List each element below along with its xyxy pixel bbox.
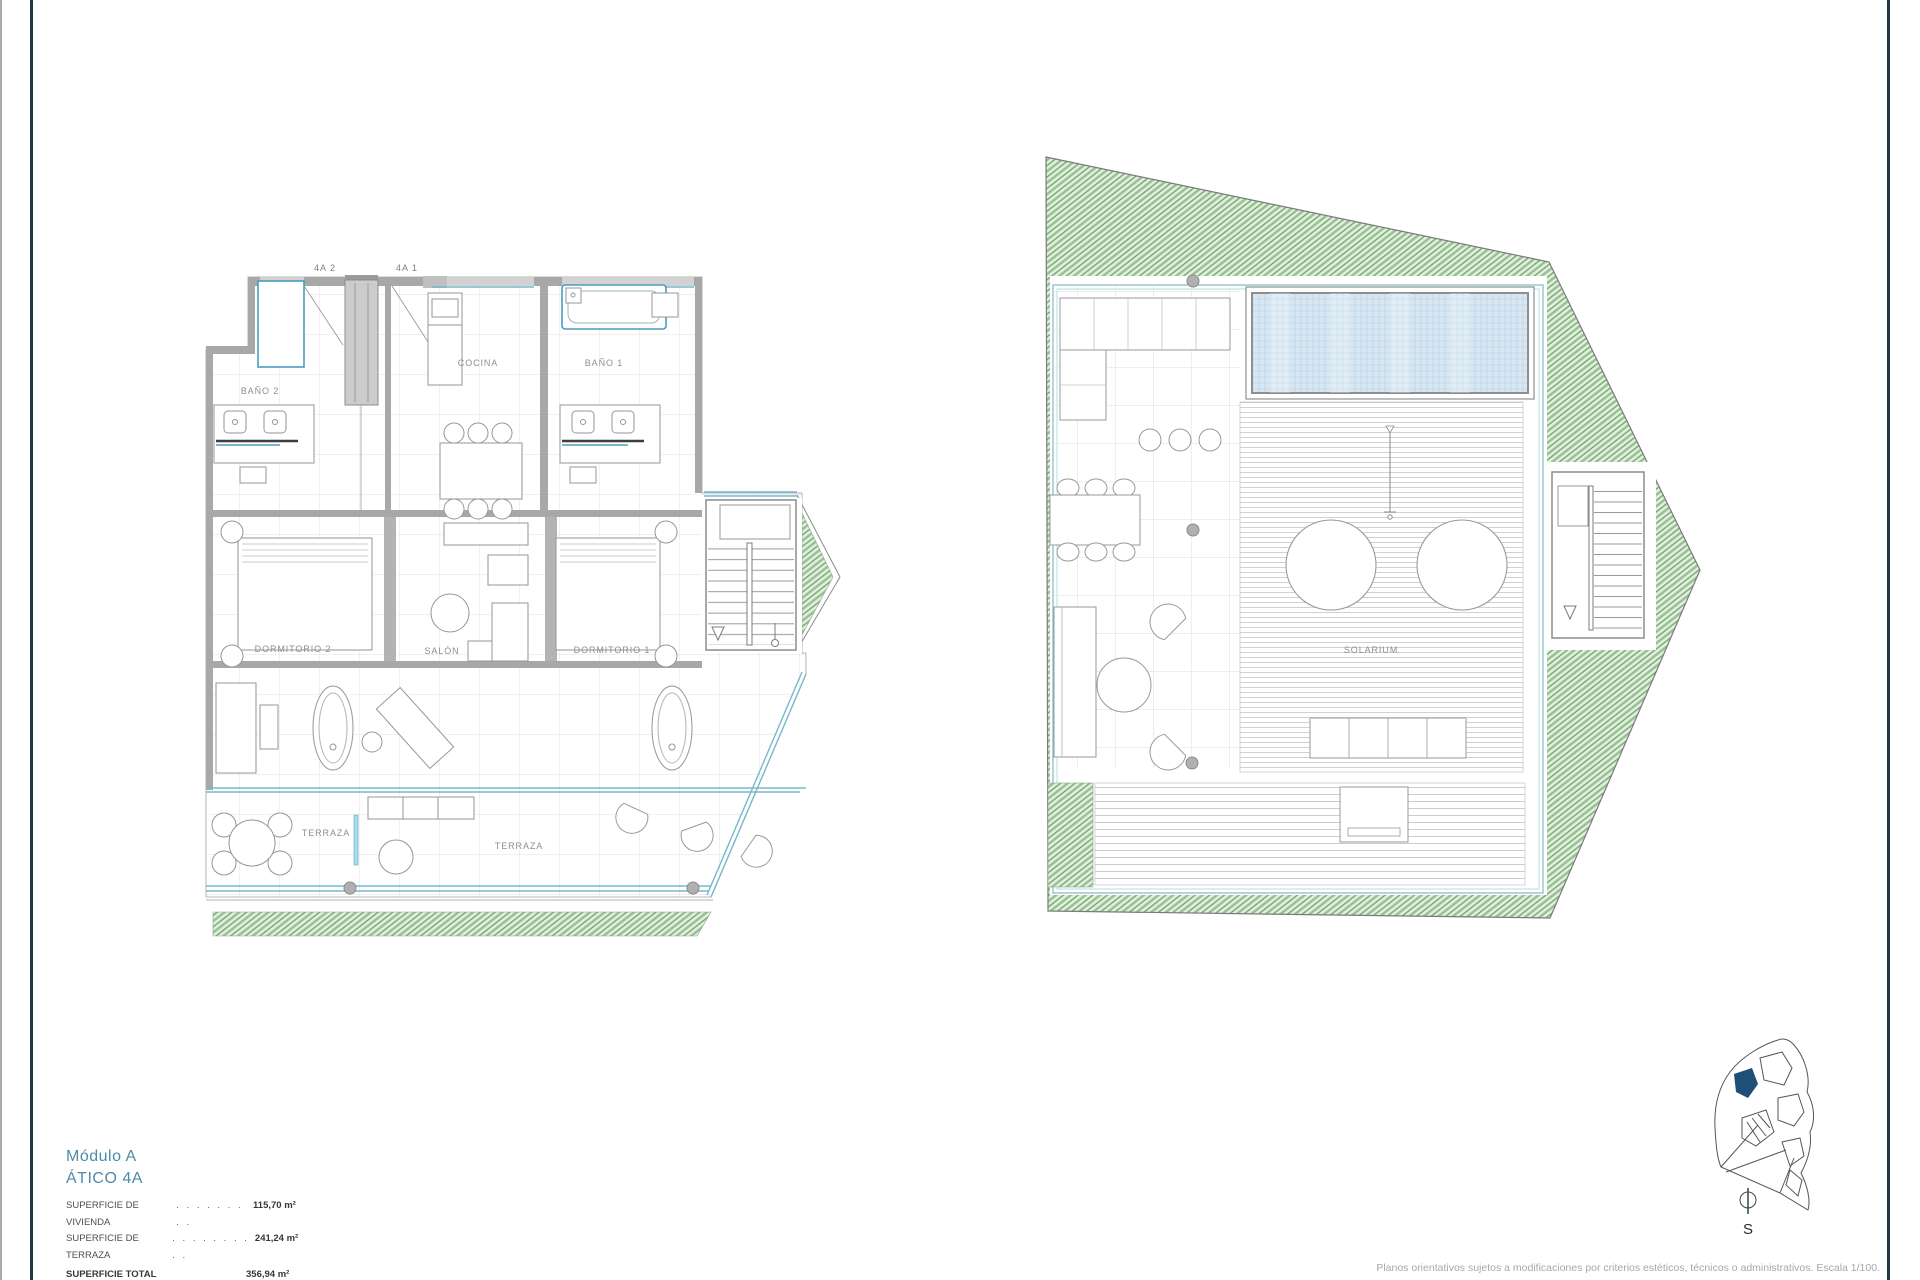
area-dots: . . . . . . . . . bbox=[176, 1198, 253, 1231]
room-label-kitchen: COCINA bbox=[458, 358, 498, 368]
title-block: Módulo A ÁTICO 4A SUPERFICIE DE VIVIENDA… bbox=[66, 1146, 304, 1280]
site-highlight-lot bbox=[1734, 1068, 1758, 1098]
site-location-map: S bbox=[1690, 1030, 1830, 1245]
roof-lower-deck bbox=[1048, 783, 1525, 887]
area-value: 241,24 m² bbox=[255, 1231, 304, 1248]
module-title: Módulo A bbox=[66, 1146, 304, 1168]
room-label-terrace-right: TERRAZA bbox=[495, 841, 543, 851]
room-label-bath2: BAÑO 2 bbox=[241, 386, 279, 396]
apartment-staircase bbox=[702, 498, 802, 653]
roof-pool bbox=[1246, 287, 1534, 399]
area-row-terraza: SUPERFICIE DE TERRAZA . . . . . . . . . … bbox=[66, 1231, 304, 1264]
area-value-total: 356,94 m² bbox=[246, 1267, 304, 1280]
sheet-edge-line bbox=[0, 0, 2, 1280]
solarium-roof-plan: SOLARIUM bbox=[1040, 140, 1720, 930]
area-value: 115,70 m² bbox=[253, 1198, 304, 1215]
compass: S bbox=[1740, 1188, 1756, 1238]
right-margin-rule bbox=[1887, 0, 1890, 1280]
site-outline bbox=[1715, 1039, 1814, 1210]
entry-label-4a2: 4A 2 bbox=[314, 263, 336, 273]
plan-sheet: 4A 2 4A 1 BAÑO 2 COCINA BAÑO 1 DORMITORI… bbox=[0, 0, 1920, 1280]
area-label: SUPERFICIE DE TERRAZA bbox=[66, 1231, 167, 1264]
area-dots: . . . . . . . . . . bbox=[172, 1231, 255, 1264]
apartment-floor-plan: 4A 2 4A 1 BAÑO 2 COCINA BAÑO 1 DORMITORI… bbox=[200, 255, 860, 945]
area-row-vivienda: SUPERFICIE DE VIVIENDA . . . . . . . . .… bbox=[66, 1198, 304, 1231]
room-label-solarium: SOLARIUM bbox=[1344, 645, 1398, 655]
compass-south-label: S bbox=[1743, 1221, 1753, 1238]
entry-label-4a1: 4A 1 bbox=[396, 263, 418, 273]
area-label: SUPERFICIE DE VIVIENDA bbox=[66, 1198, 171, 1231]
room-label-terrace-left: TERRAZA bbox=[302, 828, 350, 838]
area-label-total: SUPERFICIE TOTAL bbox=[66, 1267, 156, 1280]
unit-title: ÁTICO 4A bbox=[66, 1168, 304, 1190]
room-label-bath1: BAÑO 1 bbox=[585, 358, 623, 368]
roof-tiled-zone bbox=[1050, 275, 1240, 777]
roof-staircase bbox=[1552, 472, 1644, 638]
disclaimer-text: Planos orientativos sujetos a modificaci… bbox=[1376, 1262, 1880, 1274]
room-label-living: SALÓN bbox=[424, 646, 459, 656]
area-table: SUPERFICIE DE VIVIENDA . . . . . . . . .… bbox=[66, 1198, 304, 1280]
area-row-total: SUPERFICIE TOTAL 356,94 m² bbox=[66, 1267, 304, 1280]
room-label-bedroom2: DORMITORIO 2 bbox=[255, 644, 332, 654]
roof-solarium-deck bbox=[1240, 402, 1523, 772]
room-label-bedroom1: DORMITORIO 1 bbox=[574, 645, 651, 655]
left-margin-rule bbox=[30, 0, 33, 1280]
